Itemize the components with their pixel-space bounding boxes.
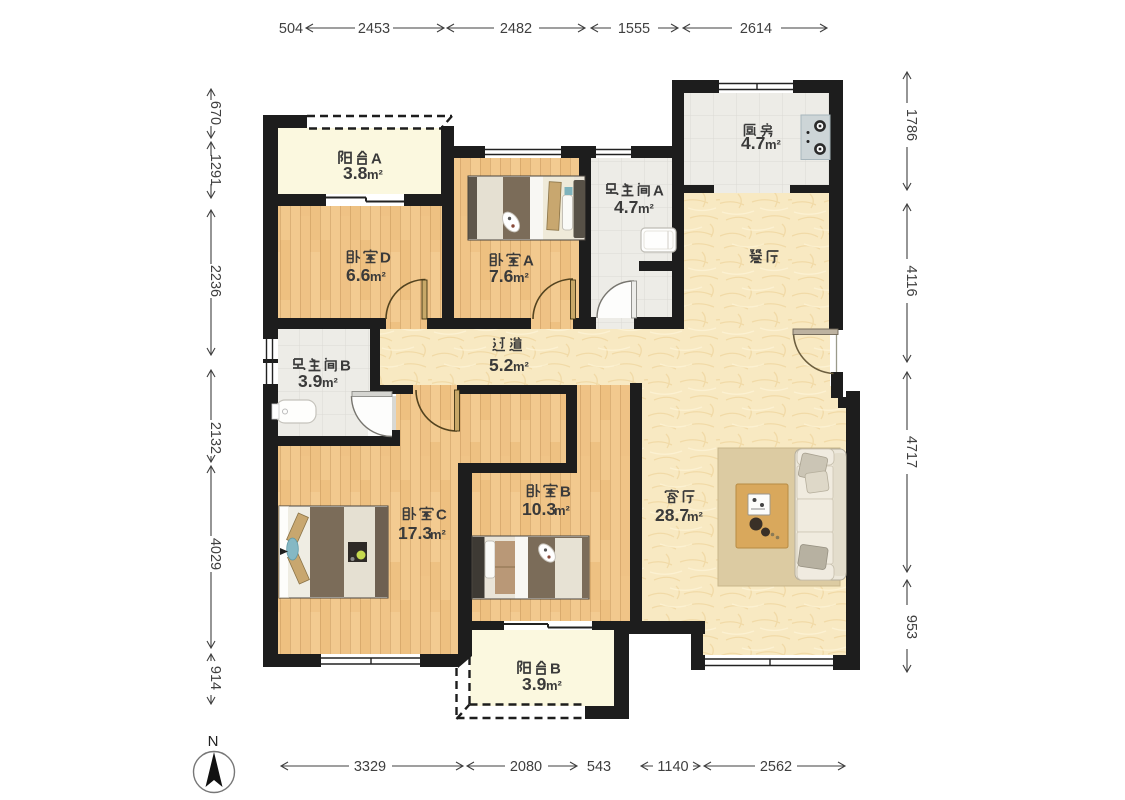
- svg-text:m²: m²: [765, 137, 782, 152]
- svg-text:2236: 2236: [207, 265, 223, 297]
- svg-text:4.7: 4.7: [741, 133, 765, 153]
- svg-text:953: 953: [903, 615, 919, 639]
- svg-text:m²: m²: [638, 201, 655, 216]
- svg-text:3.9: 3.9: [522, 674, 547, 694]
- svg-text:D: D: [380, 250, 391, 267]
- svg-text:6.6: 6.6: [346, 265, 371, 285]
- svg-text:2482: 2482: [500, 21, 532, 37]
- svg-text:3329: 3329: [354, 759, 386, 775]
- svg-text:A: A: [653, 183, 664, 200]
- svg-text:m²: m²: [546, 678, 563, 693]
- svg-text:28.7: 28.7: [655, 505, 689, 525]
- svg-text:m²: m²: [367, 167, 384, 182]
- svg-text:m²: m²: [430, 527, 447, 542]
- svg-text:m²: m²: [687, 509, 704, 524]
- svg-text:B: B: [560, 484, 571, 501]
- svg-text:3.8: 3.8: [343, 163, 368, 183]
- svg-text:543: 543: [587, 759, 611, 775]
- svg-text:4717: 4717: [903, 436, 919, 468]
- svg-text:m²: m²: [554, 503, 571, 518]
- svg-text:2453: 2453: [358, 21, 390, 37]
- svg-text:A: A: [523, 253, 534, 270]
- svg-text:10.3: 10.3: [522, 499, 556, 519]
- svg-text:914: 914: [207, 666, 223, 690]
- svg-text:3.9: 3.9: [298, 371, 323, 391]
- svg-text:B: B: [550, 661, 561, 678]
- svg-text:2614: 2614: [740, 21, 772, 37]
- svg-text:m²: m²: [370, 269, 387, 284]
- svg-text:1555: 1555: [618, 21, 650, 37]
- svg-text:1291: 1291: [207, 154, 223, 186]
- svg-text:m²: m²: [513, 359, 530, 374]
- svg-text:5.2: 5.2: [489, 355, 514, 375]
- svg-text:m²: m²: [513, 270, 530, 285]
- svg-text:1140: 1140: [657, 759, 688, 775]
- svg-text:4116: 4116: [903, 265, 919, 296]
- svg-text:2080: 2080: [510, 759, 542, 775]
- svg-text:1786: 1786: [903, 109, 919, 141]
- svg-text:670: 670: [207, 101, 223, 125]
- svg-text:A: A: [371, 151, 382, 168]
- svg-text:C: C: [436, 507, 447, 524]
- svg-text:m²: m²: [322, 375, 339, 390]
- svg-text:N: N: [208, 733, 219, 750]
- svg-text:4.7: 4.7: [614, 197, 638, 217]
- svg-text:2132: 2132: [207, 422, 223, 454]
- svg-text:2562: 2562: [760, 759, 792, 775]
- svg-text:504: 504: [279, 21, 303, 37]
- svg-text:4029: 4029: [207, 538, 223, 570]
- svg-text:B: B: [340, 358, 351, 375]
- svg-text:17.3: 17.3: [398, 523, 432, 543]
- svg-text:7.6: 7.6: [489, 266, 514, 286]
